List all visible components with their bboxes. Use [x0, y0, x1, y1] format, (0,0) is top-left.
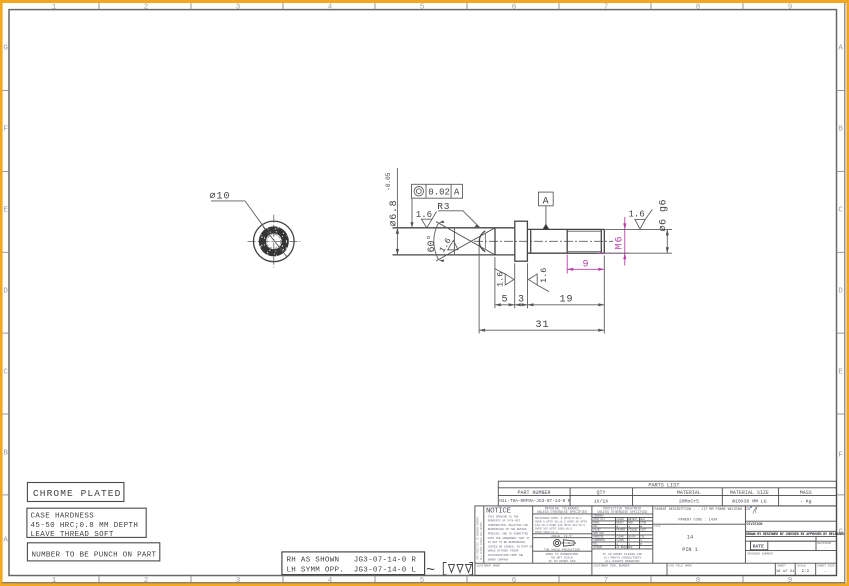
- svg-text:FINISH: FINISH: [629, 529, 638, 532]
- svg-text:4: 4: [328, 4, 333, 12]
- svg-text:.: .: [669, 571, 671, 575]
- svg-text:E: E: [3, 207, 8, 215]
- svg-text:PROPERTY OF TATA MOT: PROPERTY OF TATA MOT: [488, 520, 521, 523]
- svg-text:CORPORATION, RELATING THE: CORPORATION, RELATING THE: [488, 524, 529, 527]
- svg-text:SHEET SIZE: SHEET SIZE: [817, 564, 835, 567]
- svg-text:2: 2: [144, 4, 149, 12]
- svg-text:COAT: COAT: [641, 529, 647, 532]
- svg-text:(C) MEHTA CONSULTANCY: (C) MEHTA CONSULTANCY: [603, 555, 641, 559]
- svg-text:AS REQUIRED: AS REQUIRED: [617, 546, 633, 549]
- svg-text:UNLESS OTHERWISE SPECIFIED: UNLESS OTHERWISE SPECIFIED: [537, 510, 587, 514]
- svg-text:D: D: [3, 288, 8, 296]
- svg-text:PRIMER: PRIMER: [617, 529, 626, 532]
- svg-text:9: 9: [788, 577, 793, 585]
- svg-text:CUSTOMER NAME: CUSTOMER NAME: [477, 565, 501, 568]
- svg-text:1X/1X: 1X/1X: [594, 499, 609, 505]
- svg-text:1: 1: [52, 577, 57, 585]
- svg-text:3: 3: [236, 4, 241, 12]
- svg-text:SCALE: SCALE: [797, 564, 806, 567]
- svg-text:1:1: 1:1: [802, 570, 810, 574]
- svg-text:RH AS SHOWN JG3-07-14-0 R: RH AS SHOWN JG3-07-14-0 R: [287, 556, 417, 564]
- svg-text:~: ~: [426, 562, 435, 579]
- svg-text:1.6: 1.6: [496, 272, 506, 287]
- svg-text:LEAVE THREAD SOFT: LEAVE THREAD SOFT: [31, 531, 114, 539]
- svg-text:DRAWING NUMBER: DRAWING NUMBER: [748, 552, 773, 555]
- svg-text:31: 31: [536, 320, 550, 331]
- svg-text:LH SYMM OPP. JG3-07-14-0 L: LH SYMM OPP. JG3-07-14-0 L: [287, 566, 417, 574]
- svg-text:14: 14: [687, 535, 693, 541]
- svg-text:THIS DRAWING IS THE: THIS DRAWING IS THE: [488, 515, 519, 518]
- svg-text:M6: M6: [615, 235, 626, 249]
- svg-text:∅6.8: ∅6.8: [389, 200, 400, 227]
- svg-text:CAD FILE NAME: CAD FILE NAME: [669, 565, 693, 568]
- svg-text:20MnCr5: 20MnCr5: [679, 499, 699, 505]
- svg-text:MATERIAL SIZE: MATERIAL SIZE: [730, 490, 769, 496]
- svg-text:DATE: DATE: [753, 543, 764, 549]
- svg-text:1.6: 1.6: [629, 210, 645, 220]
- svg-text:D: D: [838, 288, 843, 296]
- svg-text:WITH THE AGREEMENT THAT IT: WITH THE AGREEMENT THAT IT: [488, 537, 530, 540]
- svg-text:CUSTOMER TOOL NUMBER: CUSTOMER TOOL NUMBER: [594, 565, 630, 568]
- svg-text:1.6: 1.6: [416, 210, 432, 220]
- svg-text:B: B: [3, 450, 8, 458]
- svg-text:A: A: [3, 537, 8, 545]
- svg-text:H1L-T9A-RRFRA-JG3-07-14-0 R: H1L-T9A-RRFRA-JG3-07-14-0 R: [499, 499, 571, 504]
- svg-text:7: 7: [604, 4, 609, 12]
- svg-text:-: -: [825, 547, 827, 551]
- svg-text:8: 8: [696, 4, 701, 12]
- svg-text:19: 19: [560, 295, 574, 306]
- svg-text:PARENT DESCRIPTION : - JIT MR: PARENT DESCRIPTION : - JIT MR FRAME WELD…: [655, 508, 751, 512]
- svg-text:REPRODUCED IN THE DESIGN: REPRODUCED IN THE DESIGN: [488, 528, 527, 531]
- svg-text:CHROME PLATED: CHROME PLATED: [33, 488, 121, 499]
- svg-text:C: C: [3, 369, 8, 377]
- svg-text:OVER 315 UPTO 1000:±0.8: OVER 315 UPTO 1000:±0.8: [535, 528, 572, 531]
- svg-text:COPIED OR LOANED, IN PART OR: COPIED OR LOANED, IN PART OR: [488, 545, 534, 548]
- svg-text:E: E: [838, 369, 843, 377]
- svg-text:1.6: 1.6: [539, 268, 549, 283]
- svg-text:9: 9: [583, 259, 589, 270]
- svg-text:3: 3: [518, 295, 524, 306]
- svg-text:WHOLE WITHOUT PRIOR: WHOLE WITHOUT PRIOR: [488, 550, 519, 553]
- svg-text:1732: 1732: [654, 525, 661, 528]
- svg-text:UNLESS OTHERWISE SPECIFIED: UNLESS OTHERWISE SPECIFIED: [598, 510, 648, 514]
- svg-text:F: F: [838, 452, 843, 460]
- svg-text:A: A: [838, 45, 843, 53]
- svg-text:A: A: [454, 188, 460, 198]
- svg-text:SHEET: SHEET: [777, 564, 786, 567]
- svg-text:QTY: QTY: [596, 490, 605, 496]
- svg-text:PARTS LIST: PARTS LIST: [648, 483, 679, 489]
- svg-text:4: 4: [328, 577, 333, 585]
- svg-text:NUMBER TO BE PUNCH ON PART: NUMBER TO BE PUNCH ON PART: [32, 552, 157, 560]
- svg-text:C: C: [838, 207, 843, 215]
- svg-text:MATERIAL: MATERIAL: [677, 490, 701, 496]
- svg-text:REVISION: REVISION: [818, 542, 832, 545]
- svg-text:3: 3: [236, 577, 241, 585]
- svg-text:6: 6: [512, 4, 517, 12]
- svg-text:1: 1: [52, 4, 57, 12]
- svg-text:CASE HARDNESS: CASE HARDNESS: [31, 512, 95, 520]
- svg-text:PROCESS, AND IS SUBMITTED: PROCESS, AND IS SUBMITTED: [488, 533, 529, 536]
- svg-text:45-50 HRC;0.8 MM DEPTH: 45-50 HRC;0.8 MM DEPTH: [31, 522, 139, 530]
- svg-text:OWNER COMPANY: OWNER COMPANY: [488, 558, 509, 561]
- svg-text:MASS: MASS: [800, 490, 812, 496]
- svg-text:- Kg: - Kg: [800, 499, 812, 505]
- svg-text:F: F: [3, 126, 8, 134]
- svg-text:ALL SHARP EDGES AND BURRS: ALL SHARP EDGES AND BURRS: [480, 522, 483, 560]
- svg-text:DIVISION: DIVISION: [747, 522, 763, 526]
- svg-text:PART NUMBER: PART NUMBER: [517, 490, 550, 496]
- svg-text:9: 9: [788, 4, 793, 12]
- svg-text:5: 5: [420, 4, 425, 12]
- svg-text:5: 5: [420, 577, 425, 585]
- svg-text:PARENT CODE : 1434: PARENT CODE : 1434: [678, 519, 717, 523]
- svg-text:OTHERS: OTHERS: [594, 546, 603, 549]
- svg-text:MACHINING DIMS: 0 UPTO 6:±0.1: MACHINING DIMS: 0 UPTO 6:±0.1: [535, 517, 582, 520]
- svg-text:7: 7: [604, 577, 609, 585]
- svg-text:OVER 6 UPTO 30:±0.2 OVER 30 UP: OVER 6 UPTO 30:±0.2 OVER 30 UPTO: [535, 520, 587, 523]
- svg-text:IF IN DOUBT ASK: IF IN DOUBT ASK: [548, 560, 575, 563]
- svg-text:5: 5: [502, 295, 508, 306]
- svg-text:∅10X36 MM LG: ∅10X36 MM LG: [732, 499, 767, 505]
- svg-text:.: .: [747, 559, 749, 563]
- svg-text:ALL RIGHTS RESERVED: ALL RIGHTS RESERVED: [605, 560, 639, 563]
- svg-text:120:±0.3 OVER 120 UPTO 315:±0.: 120:±0.3 OVER 120 UPTO 315:±0.5: [535, 524, 585, 527]
- svg-text:G: G: [3, 45, 8, 53]
- svg-text:IS NOT TO BE REPRODUCED,: IS NOT TO BE REPRODUCED,: [488, 541, 527, 544]
- svg-text:∅6 g6: ∅6 g6: [659, 199, 670, 232]
- svg-text:A: A: [543, 196, 549, 207]
- svg-text:-: -: [824, 570, 826, 574]
- svg-text:0.02: 0.02: [428, 188, 450, 198]
- svg-text:6: 6: [512, 577, 517, 585]
- svg-text:AUTHORIZATION FROM THE: AUTHORIZATION FROM THE: [488, 554, 524, 557]
- svg-text:8: 8: [696, 577, 701, 585]
- svg-text:PIN 1: PIN 1: [682, 547, 698, 553]
- svg-text:-0.05: -0.05: [385, 172, 392, 190]
- svg-text:2: 2: [144, 577, 149, 585]
- svg-text:B: B: [838, 126, 843, 134]
- svg-text:16 of 21: 16 of 21: [776, 569, 795, 574]
